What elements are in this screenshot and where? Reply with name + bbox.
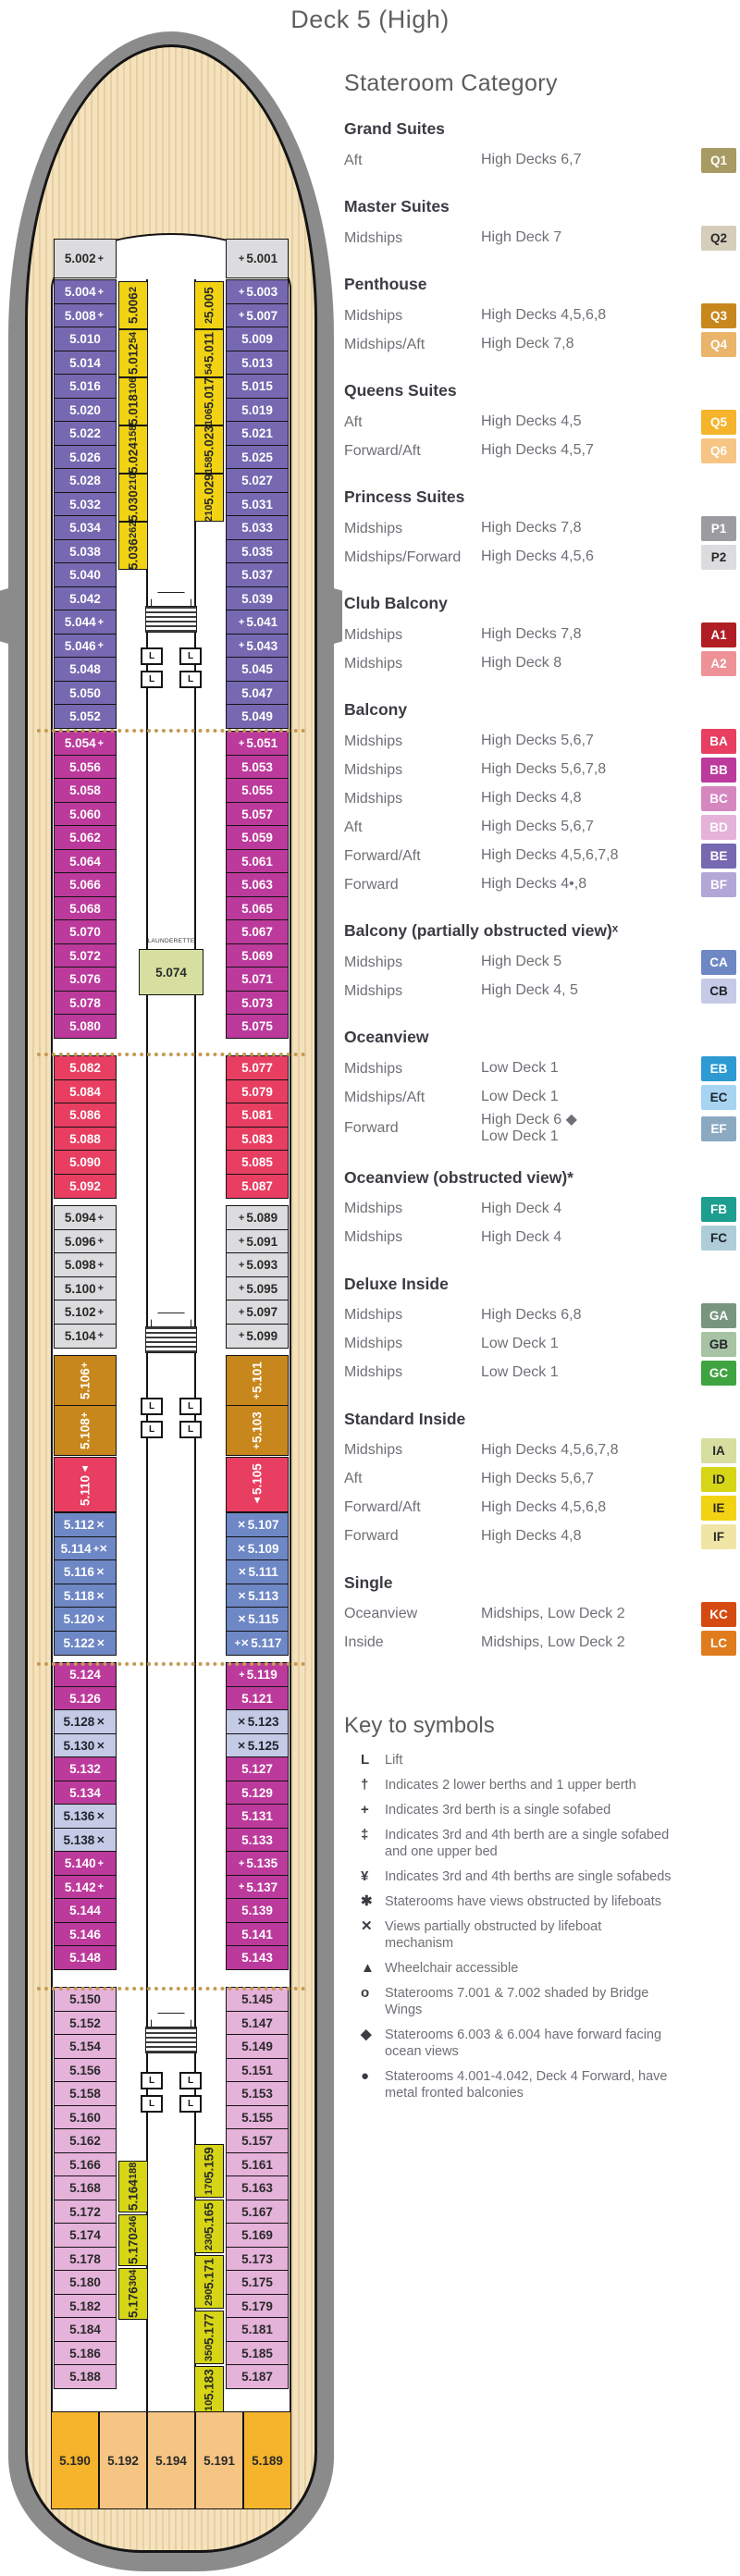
cabin-column-left: 5.004+5.008+5.0105.0145.0165.0205.0225.0… [54, 279, 117, 729]
legend-group-13: SingleOceanviewMidships, Low Deck 2KCIns… [344, 1573, 736, 1658]
cabin-5.099: +5.099 [226, 1324, 289, 1349]
legend-decks: Low Deck 1 [481, 1364, 696, 1381]
cabin-5.173: 5.173 [226, 2247, 289, 2272]
legend-location: Midships [344, 733, 481, 750]
cabin-5.035: 5.035 [226, 539, 289, 564]
cabin-column-left: 5.110▲ [54, 1457, 117, 1512]
legend-location: Forward [344, 877, 481, 894]
cabin-5.149: 5.149 [226, 2034, 289, 2059]
ship-section-aft-bb-cb: 5.1245.1265.128✕5.130✕5.1325.1345.136✕5.… [0, 1662, 342, 1987]
cabin-5.089: +5.089 [226, 1205, 289, 1230]
legend-location: Oceanview [344, 1606, 481, 1622]
cabin-5.068: 5.068 [54, 896, 117, 921]
cabin-column-right: 5.0775.0795.0815.0835.0855.087 [226, 1055, 289, 1199]
key-item: ✕Views partially obstructed by lifeboat … [344, 1918, 736, 1952]
cabin-5.144: 5.144 [54, 1898, 117, 1923]
cabin-5.147: 5.147 [226, 2011, 289, 2036]
legend-group-title: Deluxe Inside [344, 1275, 736, 1294]
cabin-5.034: 5.034 [54, 515, 117, 540]
stairs-icon [145, 1313, 197, 1353]
cabin-5.135: +5.135 [226, 1851, 289, 1876]
cabin-5.049: 5.049 [226, 704, 289, 729]
cabin-5.087: 5.087 [226, 1174, 289, 1199]
category-badge-BF: BF [701, 872, 736, 897]
legend-row: MidshipsHigh Decks 7,8A1 [344, 621, 736, 649]
cabin-5.079: 5.079 [226, 1079, 289, 1104]
key-item: +Indicates 3rd berth is a single sofabed [344, 1802, 736, 1818]
stern-cabin-row: 5.1905.1925.1945.1915.189 [51, 2411, 291, 2509]
legend-group-title: Princess Suites [344, 487, 736, 507]
cabin-5.081: 5.081 [226, 1103, 289, 1128]
legend-location: Midships [344, 1364, 481, 1381]
legend-location: Midships [344, 1442, 481, 1459]
fire-zone-dotted-line-1 [37, 729, 305, 733]
cabin-column-left: 5.054+5.0565.0585.0605.0625.0645.0665.06… [54, 731, 117, 1039]
cabin-5.116: 5.116✕ [54, 1559, 117, 1584]
category-badge-BA: BA [701, 729, 736, 754]
cabin-5.048: 5.048 [54, 657, 117, 682]
legend-group-11: Deluxe InsideMidshipsHigh Decks 6,8GAMid… [344, 1275, 736, 1387]
cabin-5.163: 5.163 [226, 2175, 289, 2200]
legend-location: Midships [344, 983, 481, 1000]
legend-location: Aft [344, 414, 481, 431]
legend-location: Midships [344, 1201, 481, 1217]
legend-row: AftHigh Decks 4,5Q5 [344, 408, 736, 437]
cabin-5.091: +5.091 [226, 1229, 289, 1254]
cabin-column-left: 5.002+ [54, 239, 117, 278]
key-text: Staterooms 6.003 & 6.004 have forward fa… [385, 2027, 672, 2060]
cabin-5.066: 5.066 [54, 872, 117, 897]
cabin-5.007: +5.007 [226, 303, 289, 328]
corridor-wall-left [146, 1055, 148, 1205]
cabin-5.063: 5.063 [226, 872, 289, 897]
legend-decks: High Decks 4,8 [481, 790, 696, 807]
cabin-5.169: 5.169 [226, 2223, 289, 2248]
cabin-5.022: 5.022 [54, 421, 117, 446]
legend-group-9: OceanviewMidshipsLow Deck 1EBMidships/Af… [344, 1028, 736, 1146]
legend-row: ForwardHigh Decks 4,8IF [344, 1522, 736, 1551]
cabin-5.071: 5.071 [226, 967, 289, 992]
key-item: ▲Wheelchair accessible [344, 1960, 736, 1977]
corridor-wall-left [146, 1457, 148, 1512]
cabin-5.177: 3505.177 [194, 2311, 224, 2364]
cabin-column-left: 5.1505.1525.1545.1565.1585.1605.1625.166… [54, 1987, 117, 2389]
legend-decks: High Decks 5,6,7 [481, 819, 696, 835]
cabin-5.190: 5.190 [51, 2411, 99, 2509]
cabin-5.062: 5.062 [54, 825, 117, 850]
legend-location: Midships [344, 230, 481, 247]
cabin-5.052: 5.052 [54, 704, 117, 729]
legend-group-title: Club Balcony [344, 594, 736, 613]
category-badge-EC: EC [701, 1085, 736, 1110]
lift-icon: L [141, 2072, 163, 2089]
cabin-5.061: 5.061 [226, 849, 289, 874]
key-text: Indicates 3rd berth is a single sofabed [385, 1802, 672, 1818]
legend-group-1: Grand SuitesAftHigh Decks 6,7Q1 [344, 119, 736, 175]
lift-icon: L [141, 1421, 163, 1438]
launderette-label: LAUNDERETTE [148, 938, 195, 944]
key-symbol: ◆ [361, 2027, 385, 2060]
ship-section-mid-p2: 5.094+5.096+5.098+5.100+5.102+5.104++5.0… [0, 1205, 342, 1355]
cabin-5.057: 5.057 [226, 802, 289, 827]
cabin-5.098: 5.098+ [54, 1252, 117, 1277]
legend-decks: High Deck 7,8 [481, 336, 696, 352]
cabin-5.107: ✕5.107 [226, 1512, 289, 1537]
legend-decks: Low Deck 1 [481, 1336, 696, 1352]
ship-section-mid-ba-accessible: 5.110▲▲5.105 [0, 1457, 342, 1512]
cabin-5.121: 5.121 [226, 1686, 289, 1711]
cabin-5.157: 5.157 [226, 2128, 289, 2153]
legend-row: Forward/AftHigh Decks 4,5,6,7,8BE [344, 842, 736, 870]
legend-decks: High Decks 6,7 [481, 152, 696, 168]
legend-row: MidshipsLow Deck 1GC [344, 1359, 736, 1387]
legend-group-5: Princess SuitesMidshipsHigh Decks 7,8P1M… [344, 487, 736, 572]
legend-row: ForwardHigh Decks 4•,8BF [344, 870, 736, 899]
legend-heading: Stateroom Category [344, 70, 736, 97]
cabin-5.172: 5.172 [54, 2200, 117, 2225]
lift-icon: L [141, 647, 163, 665]
category-badge-P1: P1 [701, 516, 736, 541]
legend-group-10: Oceanview (obstructed view)*MidshipsHigh… [344, 1168, 736, 1252]
category-badge-IA: IA [701, 1438, 736, 1463]
cabin-5.025: 5.025 [226, 445, 289, 470]
cabin-5.018: 5.018106 [118, 377, 148, 425]
key-symbol: L [361, 1752, 385, 1769]
cabin-column-right: 5.1455.1475.1495.1515.1535.1555.1575.161… [226, 1987, 289, 2389]
key-symbol: ● [361, 2068, 385, 2101]
key-symbol: + [361, 1802, 385, 1818]
cabin-5.181: 5.181 [226, 2317, 289, 2342]
cabin-5.040: 5.040 [54, 562, 117, 587]
cabin-5.140: 5.140+ [54, 1851, 117, 1876]
cabin-5.056: 5.056 [54, 755, 117, 780]
legend-decks: High Decks 5,6,7,8 [481, 761, 696, 778]
lift-icon: L [141, 2095, 163, 2113]
category-badge-IE: IE [701, 1496, 736, 1521]
category-badge-EB: EB [701, 1056, 736, 1081]
legend-decks: High Decks 4,5,6,7,8 [481, 1442, 696, 1459]
lift-icon: L [141, 1398, 163, 1415]
cabin-5.194: 5.194 [147, 2411, 195, 2509]
lift-icon: L [179, 671, 202, 688]
legend-group-3: PenthouseMidshipsHigh Decks 4,5,6,8Q3Mid… [344, 275, 736, 359]
cabin-5.179: 5.179 [226, 2294, 289, 2319]
legend-decks: High Decks 4,5,6 [481, 548, 696, 565]
cabin-5.060: 5.060 [54, 802, 117, 827]
cabin-5.138: 5.138✕ [54, 1828, 117, 1853]
cabin-5.046: 5.046+ [54, 634, 117, 659]
cabin-5.132: 5.132 [54, 1756, 117, 1781]
legend-decks: High Deck 4 [481, 1229, 696, 1246]
key-text: Indicates 3rd and 4th berth are a single… [385, 1827, 672, 1860]
cabin-5.127: 5.127 [226, 1756, 289, 1781]
cabin-5.137: +5.137 [226, 1875, 289, 1900]
cabin-5.112: 5.112✕ [54, 1512, 117, 1537]
cabin-5.120: 5.120✕ [54, 1607, 117, 1632]
category-badge-EF: EF [701, 1116, 736, 1141]
key-symbol: o [361, 1985, 385, 2018]
cabin-5.187: 5.187 [226, 2364, 289, 2389]
cabin-5.128: 5.128✕ [54, 1709, 117, 1734]
ship-plan: 5.002++5.0015.004+5.008+5.0105.0145.0165… [0, 28, 342, 2576]
cabin-5.106: 5.106+ [54, 1355, 117, 1406]
legend-location: Midships [344, 1061, 481, 1078]
stairs-icon [145, 592, 197, 633]
legend-group-12: Standard InsideMidshipsHigh Decks 4,5,6,… [344, 1410, 736, 1551]
cabin-5.065: 5.065 [226, 896, 289, 921]
legend-row: Midships/AftLow Deck 1EC [344, 1083, 736, 1112]
lift-icon: L [179, 1398, 202, 1415]
cabin-5.038: 5.038 [54, 539, 117, 564]
cabin-5.001: +5.001 [226, 239, 289, 278]
cabin-column-right: +5.001 [226, 239, 289, 278]
cabin-5.125: ✕5.125 [226, 1733, 289, 1758]
cabin-5.104: 5.104+ [54, 1324, 117, 1349]
legend-decks: High Deck 8 [481, 655, 696, 672]
key-symbol: ‡ [361, 1827, 385, 1860]
category-badge-LC: LC [701, 1631, 736, 1656]
cabin-5.139: 5.139 [226, 1898, 289, 1923]
category-badge-Q6: Q6 [701, 438, 736, 463]
cabin-5.092: 5.092 [54, 1174, 117, 1199]
cabin-5.186: 5.186 [54, 2341, 117, 2366]
key-text: Wheelchair accessible [385, 1960, 672, 1977]
legend-group-7: BalconyMidshipsHigh Decks 5,6,7BAMidship… [344, 700, 736, 899]
legend-decks: Midships, Low Deck 2 [481, 1634, 696, 1651]
cabin-5.014: 5.014 [54, 351, 117, 376]
category-badge-IF: IF [701, 1524, 736, 1549]
legend-location: Aft [344, 820, 481, 836]
cabin-5.168: 5.168 [54, 2175, 117, 2200]
cabin-5.017: 1065.017 [194, 377, 224, 425]
ship-section-bridge-row: 5.002++5.001 [0, 239, 342, 278]
legend-group-title: Balcony [344, 700, 736, 720]
corridor-wall-left [146, 1662, 148, 1987]
cabin-5.013: 5.013 [226, 351, 289, 376]
ship-section-stern-row: 5.1905.1925.1945.1915.189 [0, 2411, 342, 2509]
legend-row: MidshipsHigh Decks 4,8BC [344, 784, 736, 813]
cabin-5.145: 5.145 [226, 1987, 289, 2012]
cabin-5.075: 5.075 [226, 1014, 289, 1039]
cabin-5.152: 5.152 [54, 2011, 117, 2036]
category-badge-CA: CA [701, 950, 736, 975]
legend-group-title: Oceanview [344, 1028, 736, 1047]
cabin-5.110: 5.110▲ [54, 1457, 117, 1512]
cabin-5.028: 5.028 [54, 468, 117, 493]
cabin-column-left: 5.0825.0845.0865.0885.0905.092 [54, 1055, 117, 1199]
legend-location: Aft [344, 1471, 481, 1487]
ship-section-aft-bd: 5.1505.1525.1545.1565.1585.1605.1625.166… [0, 1987, 342, 2411]
legend-row: MidshipsHigh Decks 7,8P1 [344, 514, 736, 543]
legend-decks: High Deck 4, 5 [481, 982, 696, 999]
cabin-5.010: 5.010 [54, 327, 117, 351]
cabin-5.100: 5.100+ [54, 1276, 117, 1301]
cabin-5.182: 5.182 [54, 2294, 117, 2319]
legend-decks: High Decks 4,8 [481, 1528, 696, 1545]
category-badge-BC: BC [701, 786, 736, 811]
key-symbol: ✱ [361, 1893, 385, 1910]
lift-icon: L [179, 2072, 202, 2089]
cabin-5.044: 5.044+ [54, 610, 117, 635]
corridor-wall-left [146, 1512, 148, 1662]
cabin-5.006: 5.0062 [118, 281, 148, 329]
cabin-5.011: 545.011 [194, 329, 224, 377]
legend-location: Midships/Forward [344, 549, 481, 566]
legend-decks: High Deck 7 [481, 229, 696, 246]
cabin-5.080: 5.080 [54, 1014, 117, 1039]
legend-row: MidshipsHigh Decks 6,8GA [344, 1301, 736, 1330]
category-badge-A1: A1 [701, 622, 736, 647]
category-badge-BB: BB [701, 758, 736, 783]
cabin-column-right: ▲5.105 [226, 1457, 289, 1512]
legend-location: Midships [344, 1336, 481, 1352]
legend-decks: High Decks 5,6,7 [481, 733, 696, 749]
lift-bank: LLLL [141, 2072, 202, 2113]
cabin-5.114: 5.114+✕ [54, 1536, 117, 1561]
cabin-5.076: 5.076 [54, 967, 117, 992]
cabin-5.041: +5.041 [226, 610, 289, 635]
legend-decks: High Decks 7,8 [481, 520, 696, 536]
lift-icon: L [179, 647, 202, 665]
corridor-wall-right [194, 1055, 196, 1205]
cabin-5.176: 5.176304 [118, 2268, 148, 2320]
legend-location: Midships [344, 1229, 481, 1246]
corridor-wall-left [146, 731, 148, 1055]
legend-location: Midships [344, 791, 481, 807]
cabin-5.024: 5.024158 [118, 425, 148, 474]
legend-row: Midships/AftHigh Deck 7,8Q4 [344, 330, 736, 359]
cabin-5.030: 5.030210 [118, 474, 148, 522]
legend-row: MidshipsLow Deck 1EB [344, 1054, 736, 1083]
category-badge-KC: KC [701, 1602, 736, 1627]
cabin-5.027: 5.027 [226, 468, 289, 493]
cabin-5.042: 5.042 [54, 586, 117, 611]
lift-icon: L [179, 1421, 202, 1438]
cabin-column-left: 5.112✕5.114+✕5.116✕5.118✕5.120✕5.122✕ [54, 1512, 117, 1656]
corridor-wall-right [194, 1512, 196, 1662]
cabin-5.097: +5.097 [226, 1300, 289, 1325]
cabin-5.134: 5.134 [54, 1781, 117, 1806]
key-item: ¥Indicates 3rd and 4th berths are single… [344, 1868, 736, 1885]
category-badge-GB: GB [701, 1332, 736, 1357]
cabin-5.084: 5.084 [54, 1079, 117, 1104]
legend-location: Forward [344, 1120, 481, 1137]
legend-group-title: Master Suites [344, 197, 736, 216]
legend-decks: Low Deck 1 [481, 1060, 696, 1077]
legend-decks: High Decks 4,5 [481, 413, 696, 430]
cabin-5.170: 5.170246 [118, 2214, 148, 2266]
cabin-5.096: 5.096+ [54, 1229, 117, 1254]
key-item: ‡Indicates 3rd and 4th berth are a singl… [344, 1827, 736, 1860]
cabin-5.133: 5.133 [226, 1828, 289, 1853]
cabin-5.043: +5.043 [226, 634, 289, 659]
cabin-5.086: 5.086 [54, 1103, 117, 1128]
cabin-5.191: 5.191 [195, 2411, 243, 2509]
cabin-5.058: 5.058 [54, 778, 117, 803]
cabin-5.073: 5.073 [226, 991, 289, 1016]
cabin-5.008: 5.008+ [54, 303, 117, 328]
cabin-5.126: 5.126 [54, 1686, 117, 1711]
cabin-5.189: 5.189 [243, 2411, 291, 2509]
cabin-5.032: 5.032 [54, 492, 117, 517]
legend-group-4: Queens SuitesAftHigh Decks 4,5Q5Forward/… [344, 381, 736, 465]
cabin-5.146: 5.146 [54, 1922, 117, 1947]
legend-group-title: Grand Suites [344, 119, 736, 139]
ship-section-mid-forward-bb: 5.054+5.0565.0585.0605.0625.0645.0665.06… [0, 731, 342, 1055]
legend-group-title: Balcony (partially obstructed view)ˣ [344, 921, 736, 941]
cabin-5.070: 5.070 [54, 919, 117, 944]
legend-group-title: Standard Inside [344, 1410, 736, 1429]
cabin-5.154: 5.154 [54, 2034, 117, 2059]
cabin-5.003: +5.003 [226, 279, 289, 304]
legend-row: AftHigh Decks 6,7Q1 [344, 146, 736, 175]
cabin-5.160: 5.160 [54, 2105, 117, 2130]
cabin-5.143: 5.143 [226, 1945, 289, 1970]
fire-zone-dotted-line-2 [37, 1053, 305, 1056]
legend-decks: High Decks 4,5,6,8 [481, 307, 696, 324]
legend-decks: High Decks 4•,8 [481, 876, 696, 893]
key-text: Staterooms 7.001 & 7.002 shaded by Bridg… [385, 1985, 672, 2018]
cabin-5.153: 5.153 [226, 2081, 289, 2106]
legend-group-title: Penthouse [344, 275, 736, 294]
cabin-5.162: 5.162 [54, 2128, 117, 2153]
legend-row: MidshipsHigh Decks 4,5,6,7,8IA [344, 1436, 736, 1465]
cabin-5.103: +5.103 [226, 1405, 289, 1456]
cabin-column-right: +5.089+5.091+5.093+5.095+5.097+5.099 [226, 1205, 289, 1349]
ship-section-mid-q3: 5.106+5.108++5.101+5.103LLLL [0, 1355, 342, 1457]
cabin-5.188: 5.188 [54, 2364, 117, 2389]
legend-decks: High Decks 4,5,6,8 [481, 1499, 696, 1516]
key-item: ◆Staterooms 6.003 & 6.004 have forward f… [344, 2027, 736, 2060]
key-text: Staterooms 4.001-4.042, Deck 4 Forward, … [385, 2068, 672, 2101]
legend-decks: Midships, Low Deck 2 [481, 1606, 696, 1622]
cabin-5.082: 5.082 [54, 1055, 117, 1080]
category-badge-FB: FB [701, 1197, 736, 1222]
legend-row: ForwardHigh Deck 6 ◆ Low Deck 1EF [344, 1112, 736, 1146]
legend-row: MidshipsHigh Deck 4FC [344, 1224, 736, 1252]
cabin-5.083: 5.083 [226, 1127, 289, 1152]
key-item: ✱Staterooms have views obstructed by lif… [344, 1893, 736, 1910]
cabin-5.108: 5.108+ [54, 1405, 117, 1456]
legend-decks: High Decks 5,6,7 [481, 1471, 696, 1487]
key-text: Views partially obstructed by lifeboat m… [385, 1918, 672, 1952]
cabin-5.165: 2305.165 [194, 2200, 224, 2253]
cabin-5.150: 5.150 [54, 1987, 117, 2012]
cabin-5.109: ✕5.109 [226, 1536, 289, 1561]
cabin-5.019: 5.019 [226, 398, 289, 423]
cabin-5.078: 5.078 [54, 991, 117, 1016]
corridor-wall-right [194, 1662, 196, 1987]
cabin-column-right: +5.0515.0535.0555.0575.0595.0615.0635.06… [226, 731, 289, 1039]
category-badge-FC: FC [701, 1226, 736, 1251]
legend-group-title: Queens Suites [344, 381, 736, 401]
cabin-5.085: 5.085 [226, 1150, 289, 1175]
key-to-symbols: Key to symbols LLift†Indicates 2 lower b… [344, 1713, 736, 2110]
category-badge-Q5: Q5 [701, 410, 736, 435]
stairs-icon [145, 2013, 197, 2053]
key-item: †Indicates 2 lower berths and 1 upper be… [344, 1777, 736, 1793]
legend-row: MidshipsHigh Decks 5,6,7BA [344, 727, 736, 756]
cabin-5.016: 5.016 [54, 374, 117, 399]
cabin-5.118: 5.118✕ [54, 1584, 117, 1608]
fire-zone-dotted-line-3 [37, 1662, 305, 1666]
legend-row: Forward/AftHigh Decks 4,5,6,8IE [344, 1494, 736, 1522]
cabin-5.005: 25.005 [194, 281, 224, 329]
legend-group-2: Master SuitesMidshipsHigh Deck 7Q2 [344, 197, 736, 253]
legend-decks: High Decks 6,8 [481, 1307, 696, 1324]
cabin-5.015: 5.015 [226, 374, 289, 399]
cabin-5.136: 5.136✕ [54, 1804, 117, 1829]
